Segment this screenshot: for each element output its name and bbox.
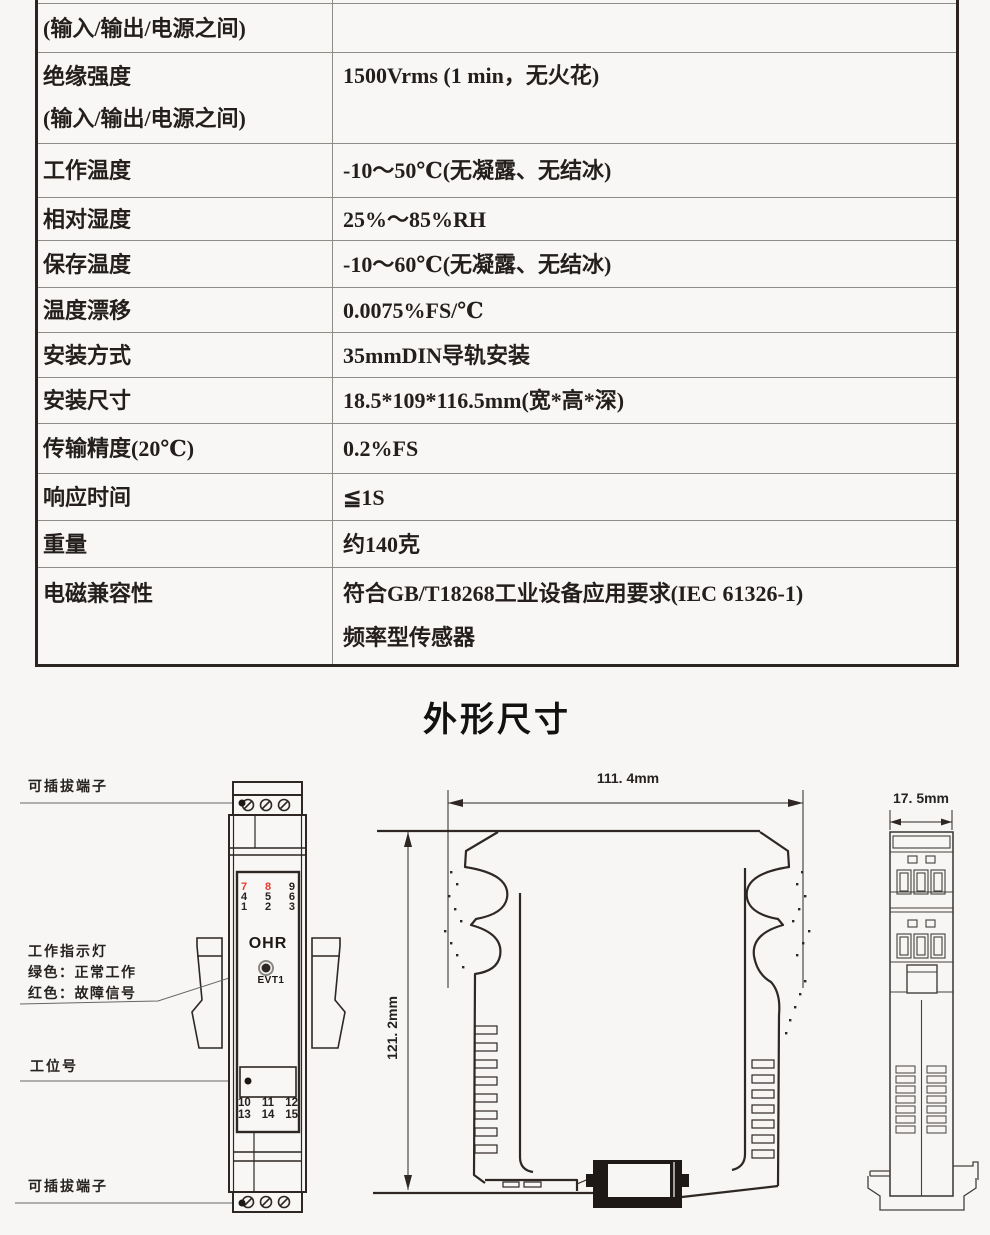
spec-label-cell: 相对湿度 <box>38 198 333 240</box>
terminal-numbers-bottom: 10 11 12 13 14 15 <box>238 1097 298 1121</box>
spec-table: (输入/输出/电源之间) 绝缘强度 (输入/输出/电源之间) 1500Vrms … <box>35 0 959 667</box>
table-row: (输入/输出/电源之间) <box>38 4 956 53</box>
terminal-number: 14 <box>262 1109 275 1121</box>
screw-position-dots <box>444 871 810 1034</box>
datasheet-page: { "colors": { "red_terminal": "#e8392a",… <box>0 0 990 1235</box>
spec-value-cell: ≦1S <box>333 474 956 520</box>
terminal-details <box>897 856 945 993</box>
spec-label-cell: 传输精度(20℃) <box>38 424 333 473</box>
spec-label-cell: 安装方式 <box>38 333 333 377</box>
din-clip <box>586 1160 689 1208</box>
spec-value-cell: 符合GB/T18268工业设备应用要求(IEC 61326-1) 频率型传感器 <box>333 568 956 664</box>
housing-outline <box>373 831 789 1197</box>
terminal-numbers-top: 7 8 9 4 5 6 1 2 3 <box>241 882 295 912</box>
label-indicator-green: 绿色：正常工作 <box>28 962 137 982</box>
terminal-number: 2 <box>265 902 271 912</box>
label-indicator-red: 红色：故障信号 <box>28 983 137 1003</box>
spec-value-cell: 0.0075%FS/℃ <box>333 288 956 332</box>
spec-label-cell: 安装尺寸 <box>38 378 333 423</box>
spec-value-cell <box>333 0 956 3</box>
table-row: 安装尺寸 18.5*109*116.5mm(宽*高*深) <box>38 378 956 424</box>
leader-lines <box>15 803 263 1203</box>
table-row: 传输精度(20℃) 0.2%FS <box>38 424 956 474</box>
model-code: EVT1 <box>243 975 299 986</box>
rail-base <box>868 1162 978 1210</box>
side-view-drawing <box>360 760 860 1235</box>
terminal-number: 12 <box>285 1097 298 1109</box>
spec-value-cell: 1500Vrms (1 min，无火花) <box>333 53 956 143</box>
spec-label-cell <box>38 0 333 3</box>
width-dimension-label: 17. 5mm <box>880 790 962 806</box>
spec-value-cell: 25%～85%RH <box>333 198 956 240</box>
spec-label-cell: 工作温度 <box>38 144 333 197</box>
width-dimension-label: 111. 4mm <box>563 770 693 786</box>
table-row: 保存温度 -10～60℃(无凝露、无结冰) <box>38 241 956 288</box>
label-top-terminal: 可插拔端子 <box>28 776 108 796</box>
spec-label-cell: 响应时间 <box>38 474 333 520</box>
label-bottom-terminal: 可插拔端子 <box>28 1176 108 1196</box>
label-indicator: 工作指示灯 <box>28 941 108 961</box>
table-row: 电磁兼容性 符合GB/T18268工业设备应用要求(IEC 61326-1) 频… <box>38 568 956 664</box>
top-view-drawing <box>860 760 990 1235</box>
terminal-number: 1 <box>241 902 247 912</box>
table-row: 相对湿度 25%～85%RH <box>38 198 956 241</box>
table-row: 工作温度 -10～50℃(无凝露、无结冰) <box>38 144 956 198</box>
module-body <box>229 782 306 1212</box>
spec-value-cell: 约140克 <box>333 521 956 567</box>
foot-details <box>503 1177 593 1187</box>
spec-value-cell: 0.2%FS <box>333 424 956 473</box>
spec-label-cell: 保存温度 <box>38 241 333 287</box>
spec-label-cell: 重量 <box>38 521 333 567</box>
spec-value-cell: -10～60℃(无凝露、无结冰) <box>333 241 956 287</box>
table-row: 绝缘强度 (输入/输出/电源之间) 1500Vrms (1 min，无火花) <box>38 53 956 144</box>
table-row: 安装方式 35mmDIN导轨安装 <box>38 333 956 378</box>
terminal-number: 3 <box>289 902 295 912</box>
spec-label-cell: (输入/输出/电源之间) <box>38 4 333 52</box>
dimension-arrows <box>404 799 803 1190</box>
terminal-number: 10 <box>238 1097 251 1109</box>
spec-label-cell: 温度漂移 <box>38 288 333 332</box>
height-dimension-label: 121. 2mm <box>384 988 400 1068</box>
spec-label-cell: 绝缘强度 (输入/输出/电源之间) <box>38 53 333 143</box>
terminal-number: 15 <box>285 1109 298 1121</box>
table-row: 响应时间 ≦1S <box>38 474 956 521</box>
spec-label-cell: 电磁兼容性 <box>38 568 333 664</box>
spec-value-cell: 35mmDIN导轨安装 <box>333 333 956 377</box>
spec-value-cell: -10～50℃(无凝露、无结冰) <box>333 144 956 197</box>
terminal-number: 11 <box>262 1097 274 1109</box>
table-row: 重量 约140克 <box>38 521 956 568</box>
spec-value-cell <box>333 4 956 52</box>
label-tag-number: 工位号 <box>30 1056 78 1076</box>
terminal-number: 13 <box>238 1109 251 1121</box>
brand-logo: OHR <box>240 935 296 953</box>
section-title: 外形尺寸 <box>297 692 697 741</box>
spec-value-cell: 18.5*109*116.5mm(宽*高*深) <box>333 378 956 423</box>
table-row: 温度漂移 0.0075%FS/℃ <box>38 288 956 333</box>
